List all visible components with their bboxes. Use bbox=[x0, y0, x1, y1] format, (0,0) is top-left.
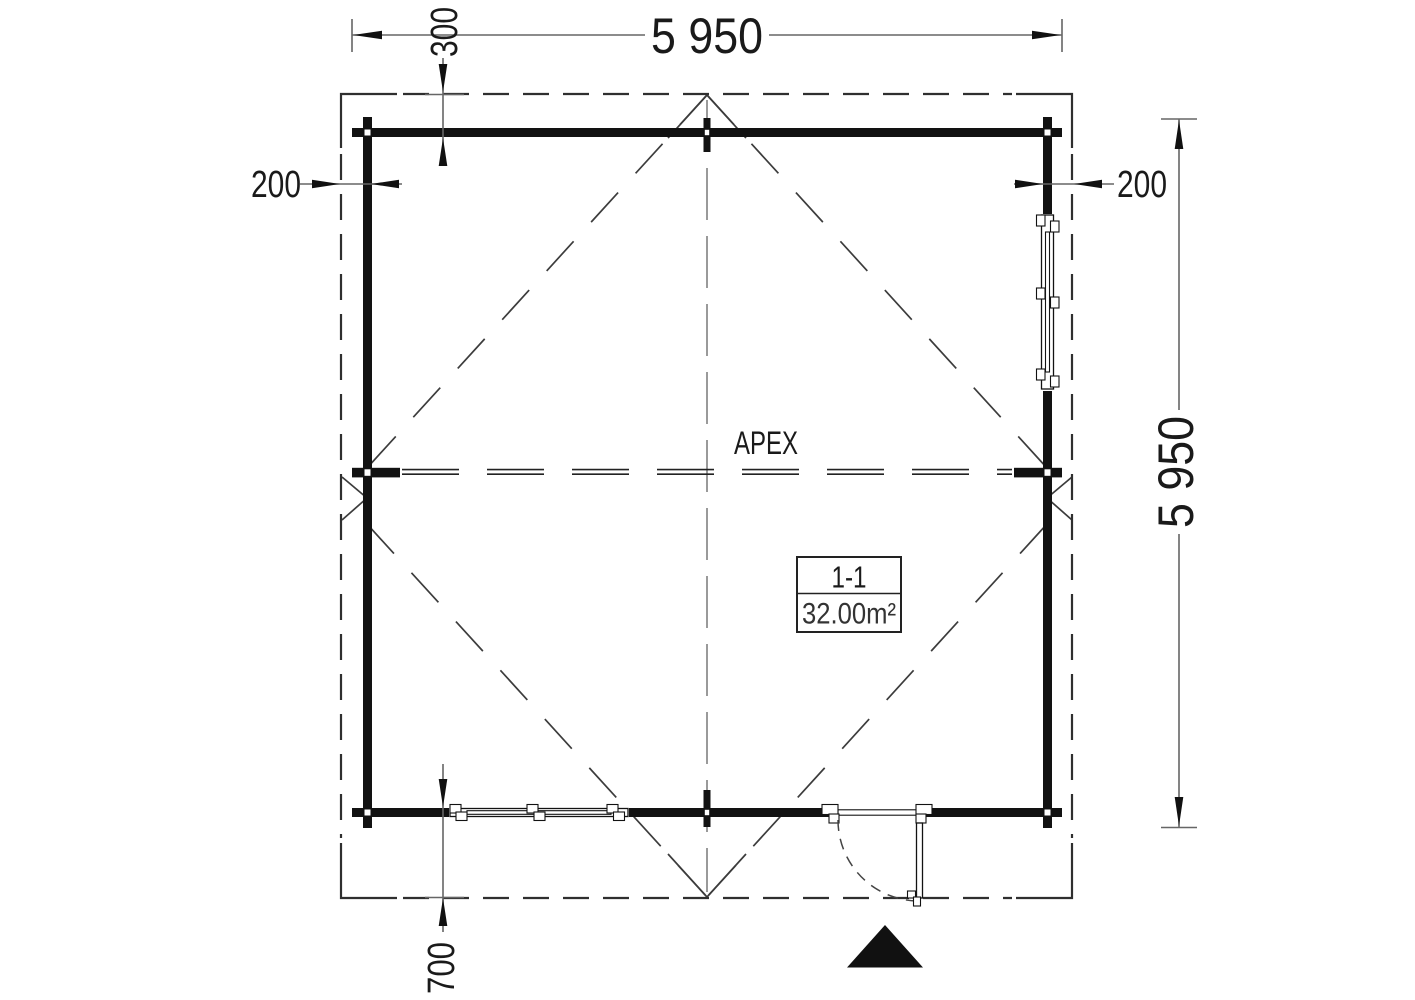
ridge-bar-left bbox=[352, 468, 400, 478]
door-swing-arc bbox=[838, 820, 919, 901]
window-frame-block bbox=[1051, 297, 1060, 308]
dim-arrowhead-left-icon bbox=[353, 31, 382, 40]
dim-arrowhead-left-icon bbox=[371, 180, 399, 189]
overhang-corner-bottom-left bbox=[341, 843, 397, 898]
window-frame-block bbox=[1051, 221, 1060, 232]
dim-right-height-label: 5 950 bbox=[1148, 416, 1204, 528]
window-frame-block bbox=[614, 812, 625, 821]
room-section-label: 1-1 bbox=[832, 560, 867, 595]
dim-left-overhang: 200 bbox=[251, 164, 402, 206]
overhang-corner-bottom-right bbox=[1016, 843, 1072, 898]
corner-joint-top-right bbox=[1045, 130, 1051, 136]
apex-label: APEX bbox=[734, 425, 798, 461]
window-bottom bbox=[449, 805, 629, 821]
door-leaf bbox=[917, 823, 923, 898]
corner-joint-bottom-left bbox=[365, 810, 371, 816]
roof-diagonal-upper-right bbox=[707, 95, 1047, 468]
dim-arrowhead-right-icon bbox=[1032, 31, 1061, 40]
roof-diagonal-lower-left bbox=[367, 524, 707, 897]
window-frame-block bbox=[1037, 215, 1046, 226]
corner-joint-bottom-right bbox=[1045, 810, 1051, 816]
ridge-bar-right-notch bbox=[1045, 469, 1051, 476]
room-area-label: 32.00m² bbox=[802, 598, 896, 631]
door-jamb-right bbox=[916, 805, 932, 815]
window-right bbox=[1037, 214, 1060, 391]
door-jamb-left bbox=[822, 805, 838, 815]
entrance-triangle-icon bbox=[847, 925, 923, 968]
window-right-glass bbox=[1046, 232, 1050, 372]
corner-joint-top-left bbox=[365, 130, 371, 136]
dim-top-width-label: 5 950 bbox=[651, 8, 763, 64]
dim-right-height: 5 950 bbox=[1148, 119, 1204, 828]
window-frame-block bbox=[456, 812, 467, 821]
window-frame-block bbox=[534, 812, 545, 821]
dim-bottom-overhang-label: 700 bbox=[421, 942, 463, 994]
room-label-box: 1-1 32.00m² bbox=[797, 557, 901, 632]
ridge-bar-right bbox=[1014, 468, 1062, 478]
dim-arrowhead-left-icon bbox=[1074, 180, 1102, 189]
door-handle-end bbox=[914, 897, 921, 906]
window-frame-block bbox=[1037, 288, 1046, 299]
dim-top-offset-label: 300 bbox=[424, 7, 466, 57]
door bbox=[822, 805, 932, 907]
dim-right-overhang: 200 bbox=[1014, 164, 1167, 206]
door-threshold bbox=[838, 810, 917, 815]
dim-arrowhead-up-icon bbox=[439, 138, 448, 166]
door-jamb-right-inner bbox=[916, 814, 926, 823]
ridge-bar-left-notch bbox=[365, 469, 371, 476]
dim-bottom-overhang: 700 bbox=[421, 764, 464, 994]
dim-arrowhead-right-icon bbox=[312, 180, 340, 189]
dim-arrowhead-down-icon bbox=[439, 64, 448, 92]
floorplan-page: 5 950 300 200 200 5 950 700 bbox=[0, 0, 1415, 1000]
dim-arrowhead-down-icon bbox=[1175, 797, 1184, 826]
dim-arrowhead-up-icon bbox=[439, 898, 448, 926]
log-tick-top-notch bbox=[705, 130, 709, 135]
dim-top-offset: 300 bbox=[424, 7, 466, 166]
log-tick-bottom-notch bbox=[705, 810, 709, 815]
window-frame-block bbox=[1037, 369, 1046, 380]
window-frame-block bbox=[1051, 376, 1060, 387]
roof-diagonal-upper-left bbox=[367, 95, 707, 468]
dim-right-overhang-label: 200 bbox=[1117, 164, 1167, 206]
dim-left-overhang-label: 200 bbox=[251, 164, 301, 206]
floorplan-drawing: 5 950 300 200 200 5 950 700 bbox=[0, 0, 1415, 1000]
dim-arrowhead-up-icon bbox=[1175, 120, 1184, 149]
dim-arrowhead-down-icon bbox=[439, 779, 448, 807]
log-tick-bottom-center bbox=[704, 790, 711, 827]
dim-arrowhead-right-icon bbox=[1015, 180, 1043, 189]
